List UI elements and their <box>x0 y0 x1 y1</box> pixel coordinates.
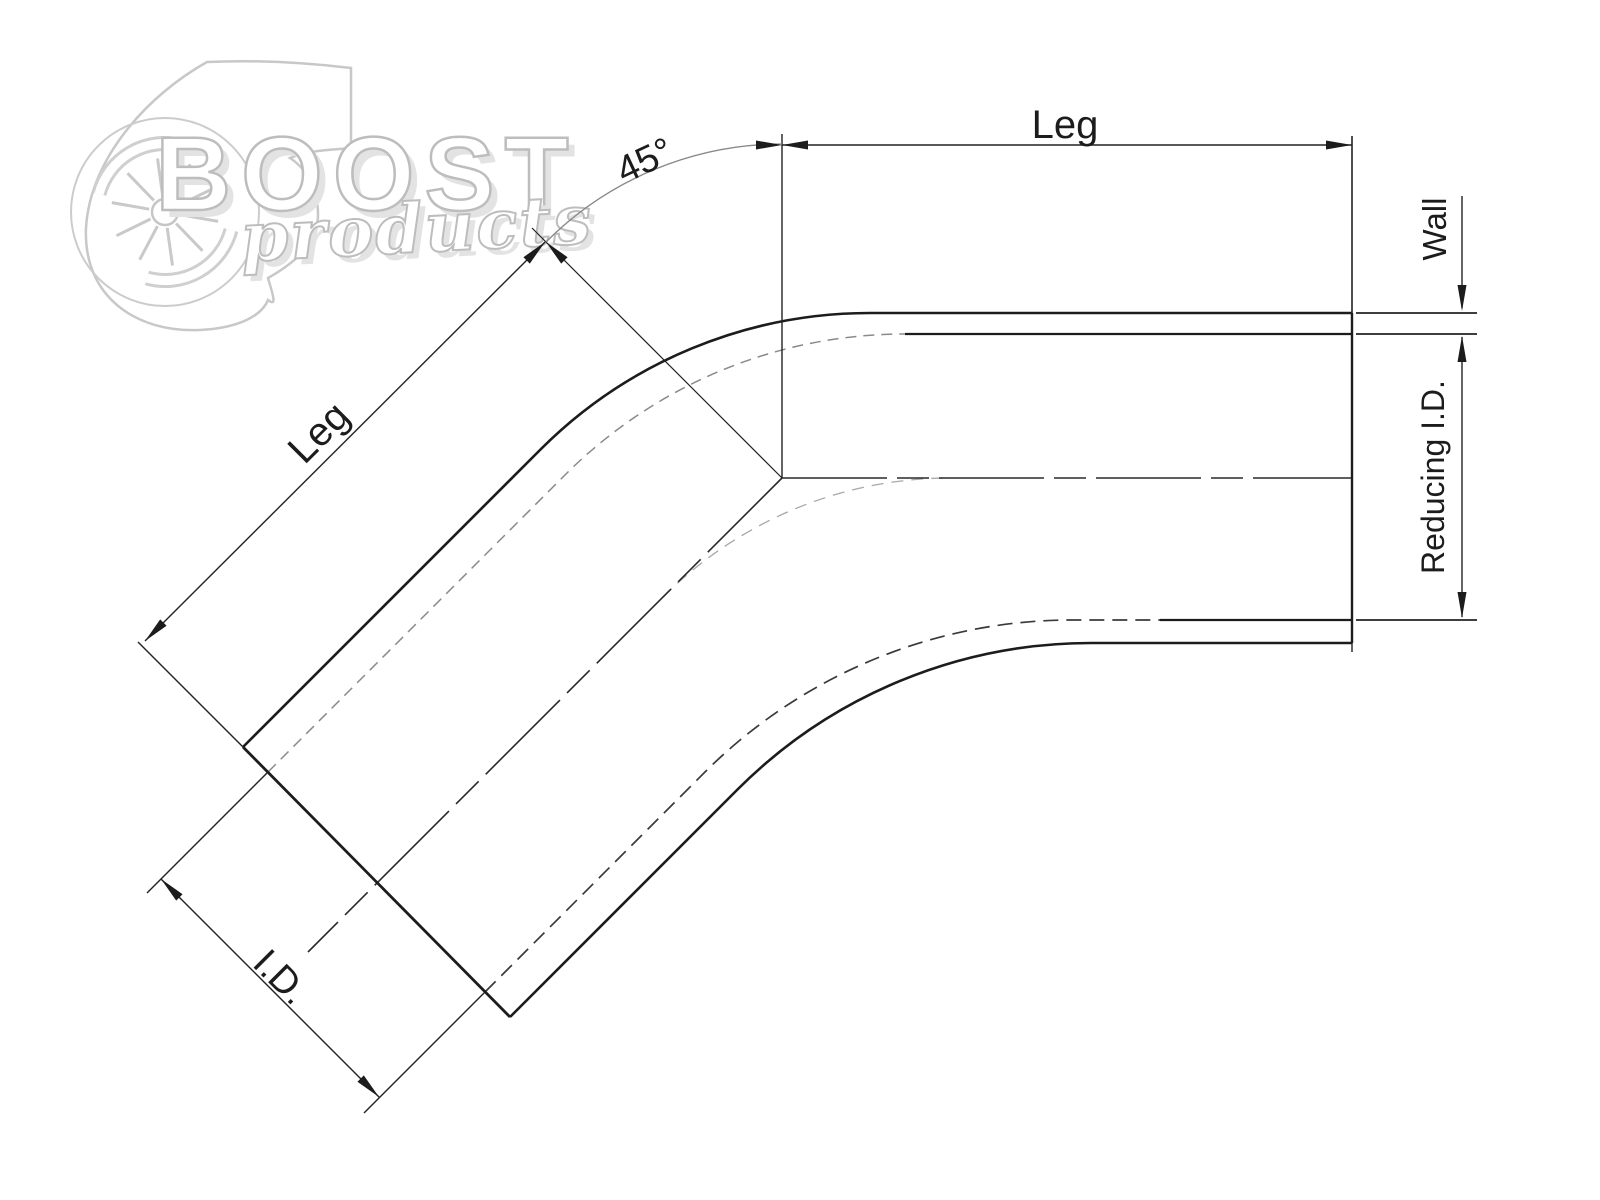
extension-line-id-lower <box>364 992 485 1113</box>
drawing-canvas: BOOST BOOST products products <box>0 0 1600 1200</box>
arrow-leg-top-left <box>782 141 808 150</box>
extension-line-45-degree <box>532 228 782 478</box>
technical-drawing: BOOST BOOST products products <box>0 0 1600 1200</box>
pipe-object-lines <box>243 313 1352 1017</box>
label-leg-top: Leg <box>1032 103 1099 147</box>
dimension-lines <box>138 134 1477 1113</box>
hidden-lines <box>268 334 1160 992</box>
pipe-outer-bottom-edge <box>510 643 1352 1017</box>
arrow-reducing-id-top <box>1458 336 1467 362</box>
arrow-id-upper <box>158 876 183 901</box>
label-leg-diagonal: Leg <box>280 394 358 472</box>
arrow-id-lower <box>357 1075 382 1100</box>
label-inner-diameter: I.D. <box>245 942 317 1014</box>
label-wall: Wall <box>1416 198 1453 261</box>
watermark-logo: BOOST BOOST products products <box>71 61 601 330</box>
label-reducing-inner-diameter: Reducing I.D. <box>1415 380 1451 574</box>
arrow-angle-arc-upper <box>756 141 782 150</box>
arrow-wall <box>1458 285 1467 311</box>
extension-line-id-upper <box>147 772 268 893</box>
centerline-diagonal-leg <box>308 478 782 952</box>
extension-line-leg-diagonal <box>138 642 243 747</box>
bend-centerline-arc <box>663 478 950 597</box>
arrow-leg-diagonal-bottom <box>142 619 167 644</box>
arrow-reducing-id-bottom <box>1458 592 1467 618</box>
label-bend-angle: 45° <box>610 130 680 192</box>
inner-wall-top-hidden-line <box>268 334 905 772</box>
inner-wall-bottom-hidden-line <box>485 620 1160 992</box>
arrow-leg-top-right <box>1326 141 1352 150</box>
